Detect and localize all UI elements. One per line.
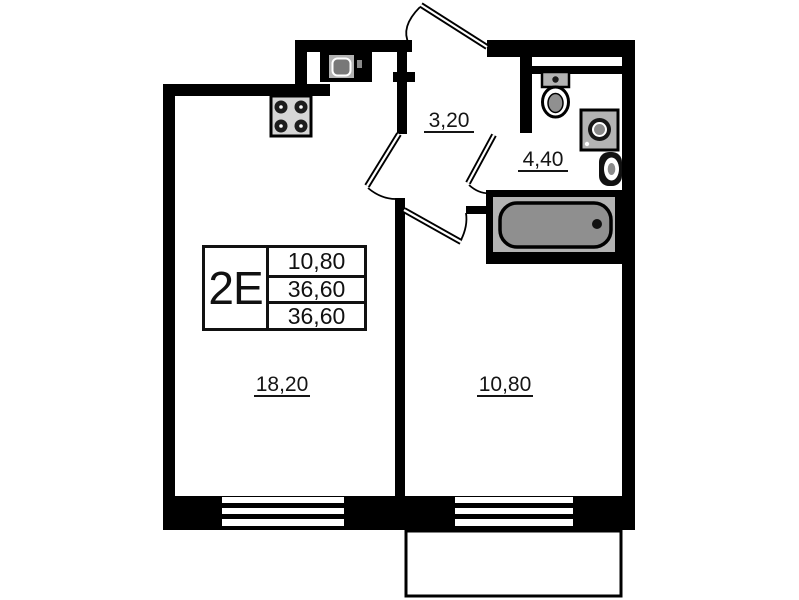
wall-entry-jamb xyxy=(393,72,415,82)
wall-kitchen-niche-top xyxy=(295,40,412,52)
living-room-area-label: 18,20 xyxy=(256,373,309,396)
area-table: 2E 10,80 36,60 36,60 xyxy=(202,245,367,331)
wall-right xyxy=(622,40,635,530)
area-row-total-with-balcony: 36,60 xyxy=(269,301,364,328)
window-living xyxy=(222,497,344,526)
washbasin-icon xyxy=(599,152,622,186)
faucet xyxy=(357,60,362,68)
vent-shaft xyxy=(307,52,320,84)
bathroom-area-label: 4,40 xyxy=(523,148,564,171)
washing-machine-icon xyxy=(581,110,618,150)
drain xyxy=(592,219,602,229)
door-bathroom xyxy=(468,135,494,193)
door-arc xyxy=(461,213,466,240)
floor-plan-drawing: 3,20 4,40 18,20 10,80 xyxy=(0,0,799,600)
door-bedroom xyxy=(404,210,466,242)
wall-room-partition xyxy=(395,198,405,496)
unit-type-label: 2E xyxy=(205,248,269,328)
wall-top-bathroom xyxy=(487,40,635,57)
wall-hall-partition-upper xyxy=(397,52,407,134)
door-arc xyxy=(406,7,420,44)
door-living-room xyxy=(367,134,399,199)
door-entrance xyxy=(406,5,487,47)
bedroom-area-label: 10,80 xyxy=(479,373,532,396)
hallway-area-label: 3,20 xyxy=(429,109,470,132)
balcony xyxy=(406,531,621,596)
area-row-total: 36,60 xyxy=(269,275,364,302)
wall-bathroom-duct xyxy=(525,66,622,74)
area-row-living: 10,80 xyxy=(269,248,364,275)
stove-icon xyxy=(271,96,311,136)
wall-left xyxy=(163,84,175,530)
toilet-icon xyxy=(542,72,569,117)
window-bedroom xyxy=(455,497,573,526)
bathtub-icon xyxy=(486,190,622,264)
door-arc xyxy=(368,188,396,199)
floor-plan-page: 3,20 4,40 18,20 10,80 2E 10,80 36,60 36,… xyxy=(0,0,799,600)
